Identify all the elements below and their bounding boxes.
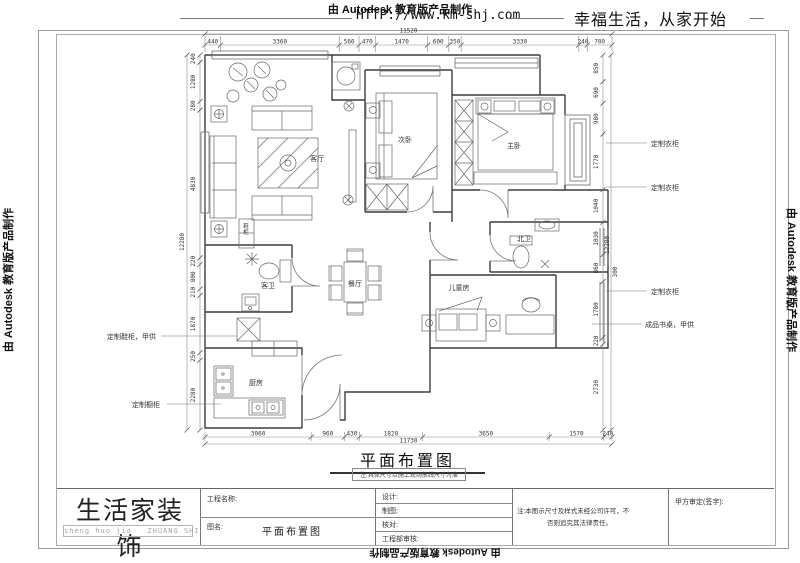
company-logo-pinyin: sheng huo jia ZHUANG SHI: [63, 525, 193, 537]
annotation-custom-wardrobe-3: 定制衣柜: [651, 287, 679, 296]
plan-note: 注:具体尺寸以施工现场放线尺寸为准: [352, 468, 466, 481]
dim-value: 280: [190, 100, 197, 111]
dim-value: 300: [612, 266, 619, 277]
dim-value: 240: [190, 53, 197, 64]
drafter-label: 制图:: [382, 506, 398, 516]
copyright-note-line2: 否则追究其法律责任。: [547, 517, 667, 527]
tv-cabinet: [349, 130, 356, 202]
dim-value: 210: [190, 286, 197, 297]
titleblock-row-line: [375, 517, 512, 518]
dim-value: 3360: [273, 39, 288, 46]
dim-overall: 11730: [399, 438, 417, 445]
dim-value: 700: [594, 39, 605, 46]
room-label-hall-cabinet: 鞋柜: [243, 222, 249, 236]
dim-value: 860: [593, 262, 600, 273]
titleblock-divider: [512, 489, 513, 545]
dim-value: 3330: [513, 39, 528, 46]
dim-value: 2730: [593, 380, 600, 395]
second-bedroom-wardrobe: [366, 184, 408, 210]
room-label-living-room: 客厅: [310, 154, 324, 163]
titleblock-row-line: [375, 503, 512, 504]
annotation-custom-wardrobe-2: 定制衣柜: [651, 183, 679, 192]
titleblock-divider: [668, 489, 669, 545]
dim-value: 980: [593, 113, 600, 124]
client-approval-label: 甲方审定(签字):: [675, 497, 724, 507]
kids-desk: [506, 298, 554, 334]
titleblock-row-line: [375, 531, 512, 532]
dim-overall: 12280: [604, 236, 611, 254]
doors: [292, 186, 516, 420]
room-label-guest-bathroom: 客卫: [261, 281, 275, 290]
living-sofa-set: [210, 106, 312, 237]
dim-value: 850: [593, 63, 600, 74]
dim-value: 2280: [190, 388, 197, 403]
room-label-north-bathroom: 北卫: [517, 235, 531, 243]
designer-label: 设计:: [382, 492, 398, 502]
second-bedroom-bed: [366, 93, 437, 179]
room-label-kitchen: 厨房: [249, 378, 263, 387]
annotation-custom-kitchen-cabinet: 定制橱柜: [132, 400, 160, 409]
plants: [227, 62, 286, 102]
dim-value: 1470: [394, 39, 409, 46]
dim-overall: 11520: [399, 28, 417, 35]
north-bathroom-fixtures: [510, 219, 559, 268]
room-label-dining-room: 餐厅: [348, 279, 362, 288]
kids-bed: [422, 297, 500, 341]
shoe-cabinet-box: [237, 318, 260, 341]
checker-label: 核对:: [382, 520, 398, 530]
dim-value: 1030: [593, 231, 600, 246]
annotation-finished-desk: 成品书桌，甲供: [645, 320, 694, 329]
dim-value: 250: [190, 351, 197, 362]
dim-value: 470: [362, 39, 373, 46]
room-label-master-bedroom: 主卧: [507, 141, 521, 150]
titleblock-row-line: [200, 517, 375, 518]
guest-bathroom-fixtures: [242, 252, 291, 311]
dim-value: 1780: [593, 302, 600, 317]
dim-value: 1870: [190, 316, 197, 331]
dim-value: 3650: [479, 431, 494, 438]
dim-value: 800: [190, 271, 197, 282]
dim-value: 220: [593, 335, 600, 346]
drawing-sheet: 由 Autodesk 教育版产品制作 HTTP://www.km-shj.com…: [0, 0, 800, 560]
dim-value: 560: [344, 39, 355, 46]
dim-value: 1280: [190, 74, 197, 89]
title-block: 生活家装饰 sheng huo jia ZHUANG SHI 工程名称: 图名:…: [57, 488, 774, 545]
project-name-label: 工程名称:: [207, 494, 237, 504]
room-label-kids-room: 儿童房: [449, 283, 470, 292]
drawing-name-value: 平面布置图: [217, 523, 367, 538]
dim-value: 1820: [384, 431, 399, 438]
master-bed: [474, 98, 557, 184]
dim-value: 440: [207, 39, 218, 46]
dim-value: 1570: [569, 431, 584, 438]
dim-value: 3060: [251, 431, 266, 438]
dim-overall: 12280: [179, 233, 186, 251]
dim-value: 690: [593, 87, 600, 98]
dim-value: 350: [450, 39, 461, 46]
annotation-custom-wardrobe-1: 定制衣柜: [651, 139, 679, 148]
annotation-custom-shoe-cabinet: 定制鞋柜，甲供: [107, 332, 156, 341]
furniture: [210, 62, 559, 418]
dim-value: 4830: [190, 176, 197, 191]
dim-value: 1770: [593, 154, 600, 169]
dim-value: 220: [190, 255, 197, 266]
master-wardrobe: [455, 100, 473, 185]
living-rug: [258, 138, 318, 188]
dim-value: 430: [347, 431, 358, 438]
dim-value: 1040: [593, 198, 600, 213]
dim-value: 960: [322, 431, 333, 438]
dim-value: 600: [433, 39, 444, 46]
room-label-second-bedroom: 次卧: [398, 135, 412, 144]
copyright-note-line1: 注:本图示尺寸及样式未经公司许可，不: [517, 505, 667, 515]
dept-review-label: 工程部审核:: [382, 534, 419, 544]
